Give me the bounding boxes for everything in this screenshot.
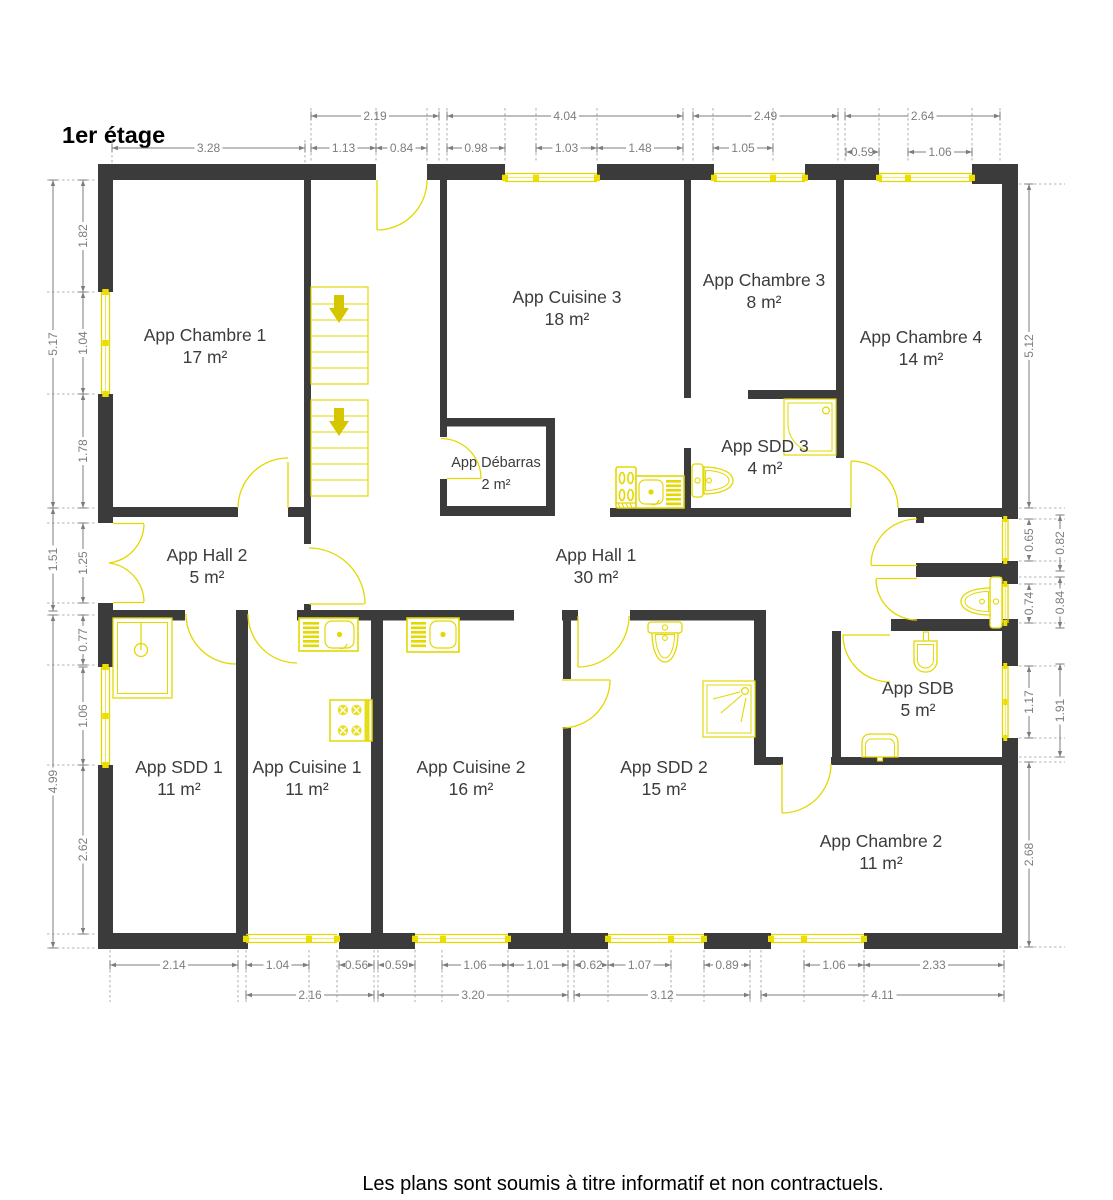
svg-text:5.17: 5.17 — [46, 332, 60, 356]
svg-text:11 m²: 11 m² — [157, 779, 201, 799]
svg-text:1.06: 1.06 — [822, 958, 846, 972]
svg-text:0.82: 0.82 — [1053, 531, 1067, 555]
svg-text:0.65: 0.65 — [1022, 528, 1036, 552]
svg-text:11 m²: 11 m² — [285, 779, 329, 799]
svg-text:App Cuisine 2: App Cuisine 2 — [417, 757, 526, 777]
svg-text:App Cuisine 3: App Cuisine 3 — [513, 287, 622, 307]
svg-text:1.06: 1.06 — [76, 704, 90, 728]
svg-text:App SDD 2: App SDD 2 — [620, 757, 708, 777]
svg-text:2.14: 2.14 — [162, 958, 186, 972]
svg-text:16 m²: 16 m² — [449, 779, 494, 799]
svg-text:8 m²: 8 m² — [747, 292, 782, 312]
svg-text:0.98: 0.98 — [464, 141, 488, 155]
svg-text:1.06: 1.06 — [463, 958, 487, 972]
svg-text:App Chambre 4: App Chambre 4 — [860, 327, 983, 347]
svg-text:2.16: 2.16 — [298, 988, 322, 1002]
svg-text:2 m²: 2 m² — [482, 477, 511, 493]
svg-text:0.77: 0.77 — [76, 628, 90, 652]
svg-text:1.25: 1.25 — [76, 551, 90, 575]
svg-text:0.74: 0.74 — [1022, 591, 1036, 615]
svg-text:14 m²: 14 m² — [899, 349, 944, 369]
svg-text:0.84: 0.84 — [390, 141, 414, 155]
svg-text:30 m²: 30 m² — [574, 567, 619, 587]
svg-text:5.12: 5.12 — [1022, 334, 1036, 358]
svg-text:4.11: 4.11 — [871, 988, 894, 1002]
svg-text:1.48: 1.48 — [628, 141, 652, 155]
svg-text:0.59: 0.59 — [851, 145, 875, 159]
svg-text:App Chambre 1: App Chambre 1 — [144, 325, 267, 345]
svg-text:1.17: 1.17 — [1022, 690, 1036, 714]
svg-text:4.99: 4.99 — [46, 769, 60, 793]
svg-text:4 m²: 4 m² — [748, 458, 783, 478]
svg-text:1.13: 1.13 — [332, 141, 356, 155]
svg-text:18 m²: 18 m² — [545, 309, 590, 329]
svg-text:5 m²: 5 m² — [901, 700, 936, 720]
svg-text:App Débarras: App Débarras — [451, 455, 540, 471]
svg-text:1.01: 1.01 — [526, 958, 550, 972]
svg-text:0.89: 0.89 — [715, 958, 739, 972]
svg-text:0.56: 0.56 — [345, 958, 369, 972]
svg-text:1er étage: 1er étage — [62, 122, 165, 148]
svg-text:2.68: 2.68 — [1022, 842, 1036, 866]
svg-text:App SDD 3: App SDD 3 — [721, 436, 809, 456]
svg-text:3.28: 3.28 — [197, 141, 221, 155]
svg-text:5 m²: 5 m² — [190, 567, 225, 587]
svg-text:2.33: 2.33 — [922, 958, 946, 972]
svg-text:2.49: 2.49 — [754, 109, 778, 123]
svg-text:1.07: 1.07 — [628, 958, 652, 972]
svg-text:App SDB: App SDB — [882, 678, 954, 698]
svg-text:11 m²: 11 m² — [859, 853, 903, 873]
svg-text:1.78: 1.78 — [76, 439, 90, 463]
svg-text:App Chambre 3: App Chambre 3 — [703, 270, 826, 290]
svg-text:App Hall 1: App Hall 1 — [556, 545, 637, 565]
svg-text:App SDD 1: App SDD 1 — [135, 757, 223, 777]
svg-text:1.91: 1.91 — [1053, 698, 1067, 722]
svg-text:0.62: 0.62 — [579, 958, 603, 972]
svg-text:4.04: 4.04 — [553, 109, 577, 123]
svg-text:App Hall 2: App Hall 2 — [167, 545, 248, 565]
svg-text:2.64: 2.64 — [911, 109, 935, 123]
svg-text:1.04: 1.04 — [76, 331, 90, 355]
svg-text:1.82: 1.82 — [76, 224, 90, 248]
svg-text:3.20: 3.20 — [461, 988, 485, 1002]
svg-text:App Chambre 2: App Chambre 2 — [820, 831, 943, 851]
svg-text:Les plans sont soumis à titre: Les plans sont soumis à titre informatif… — [362, 1173, 883, 1195]
svg-text:0.84: 0.84 — [1053, 590, 1067, 614]
svg-text:1.51: 1.51 — [46, 547, 60, 571]
svg-text:1.03: 1.03 — [555, 141, 579, 155]
svg-text:1.05: 1.05 — [731, 141, 755, 155]
svg-text:2.62: 2.62 — [76, 837, 90, 861]
svg-text:2.19: 2.19 — [363, 109, 387, 123]
svg-text:0.59: 0.59 — [385, 958, 409, 972]
svg-text:17 m²: 17 m² — [183, 347, 228, 367]
svg-text:1.06: 1.06 — [928, 145, 952, 159]
svg-text:3.12: 3.12 — [650, 988, 674, 1002]
svg-text:1.04: 1.04 — [266, 958, 290, 972]
svg-text:App Cuisine 1: App Cuisine 1 — [253, 757, 362, 777]
svg-text:15 m²: 15 m² — [642, 779, 687, 799]
